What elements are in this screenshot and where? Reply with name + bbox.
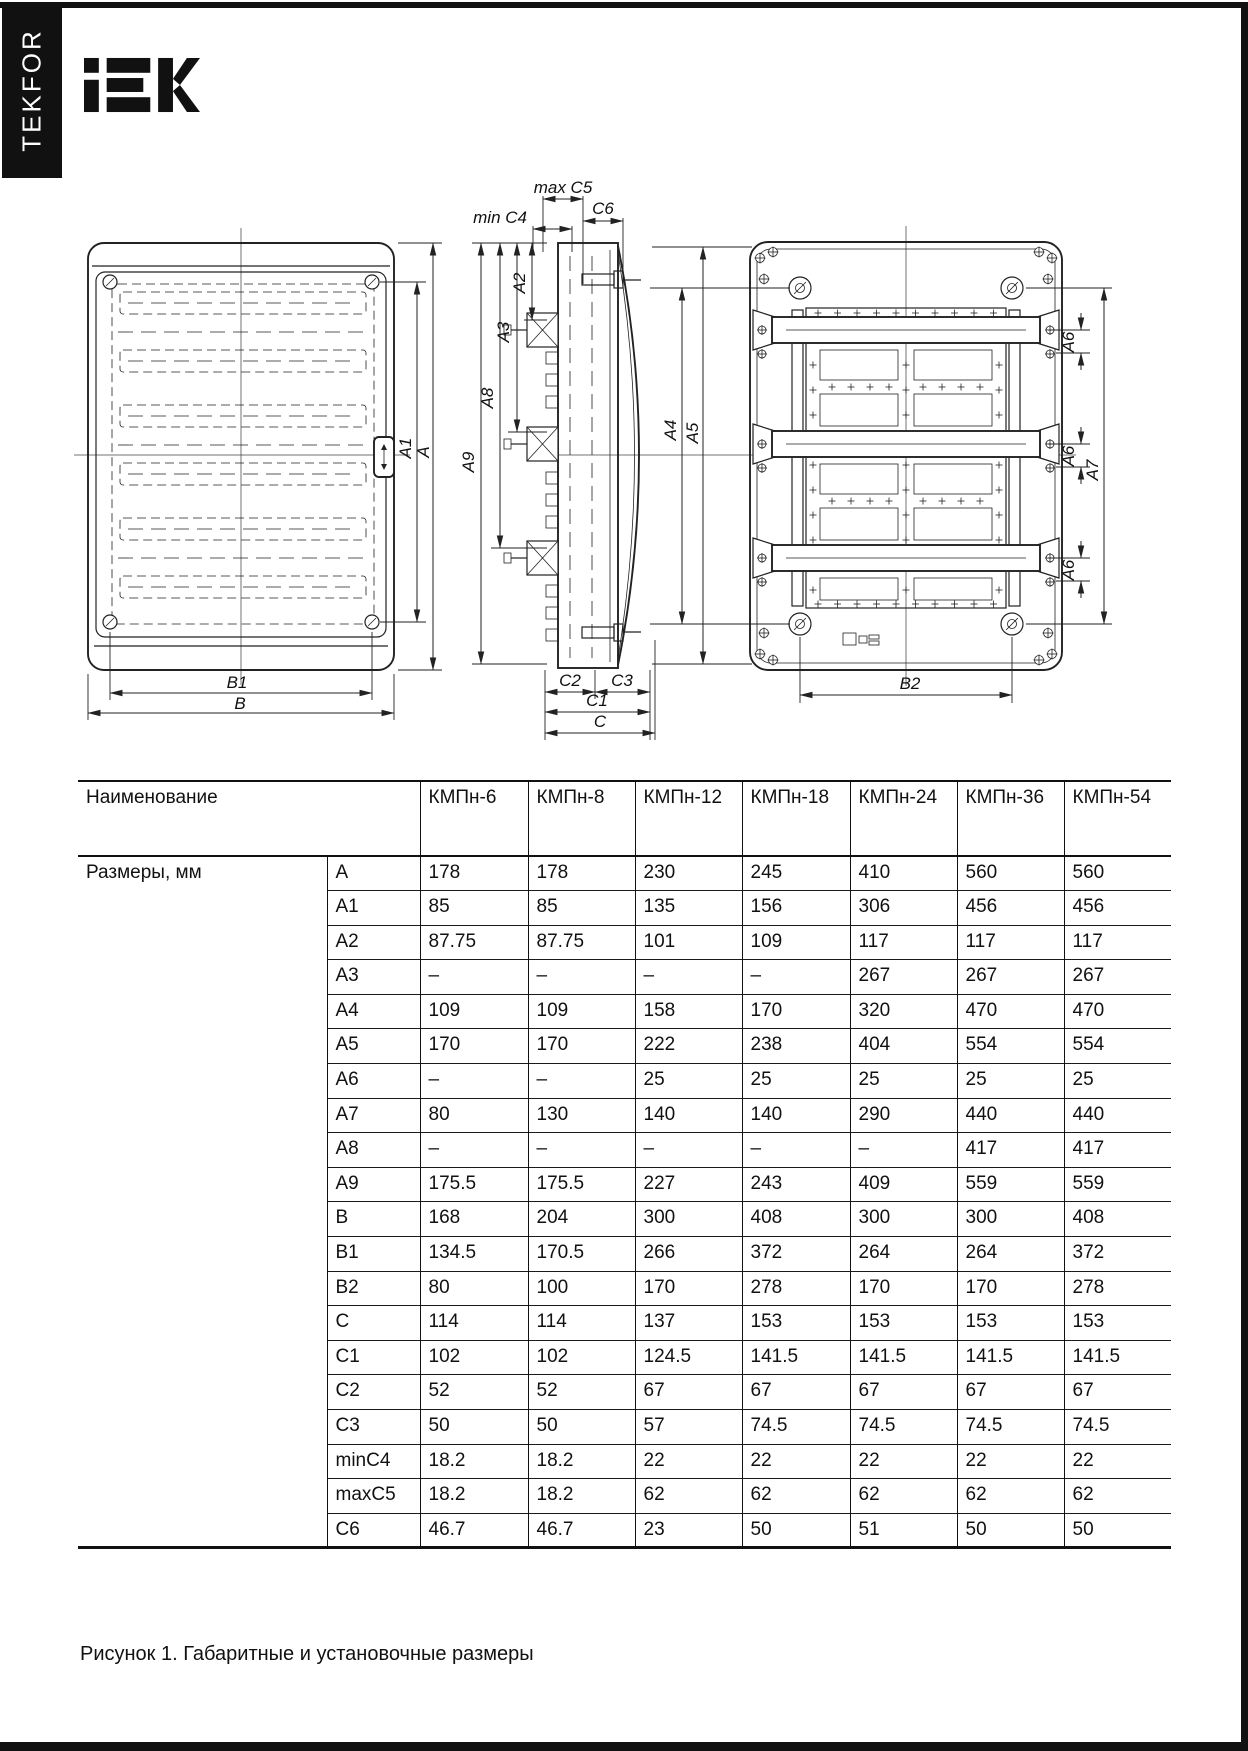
dim-label-c1: C1 [586,691,608,710]
dimension-name-cell: A7 [327,1098,420,1133]
dimension-value-cell: 67 [850,1375,957,1410]
dimension-name-cell: C [327,1306,420,1341]
dimension-name-cell: B [327,1202,420,1237]
dim-label-a6: A6 [1059,331,1078,353]
dimension-value-cell: 67 [742,1375,850,1410]
dimension-value-cell: 80 [420,1271,528,1306]
dimension-value-cell: 50 [742,1513,850,1548]
dimension-name-cell: A2 [327,925,420,960]
dimension-value-cell: 22 [957,1444,1064,1479]
dimension-value-cell: 267 [1064,960,1171,995]
dimension-value-cell: 267 [957,960,1064,995]
dimension-value-cell: 109 [742,925,850,960]
dimension-value-cell: 456 [1064,891,1171,926]
dimension-name-cell: A4 [327,994,420,1029]
dimension-value-cell: 175.5 [420,1167,528,1202]
dim-label-a4: A4 [661,420,680,442]
model-column-header: КМПн-12 [635,781,742,856]
dimension-value-cell: 140 [635,1098,742,1133]
dimension-value-cell: 560 [1064,856,1171,891]
dim-label-min-c4: min C4 [473,208,527,227]
dimension-value-cell: 51 [850,1513,957,1548]
dimension-value-cell: – [528,1064,635,1099]
dimension-value-cell: 278 [1064,1271,1171,1306]
model-column-header: КМПн-6 [420,781,528,856]
model-column-header: КМПн-36 [957,781,1064,856]
dimension-value-cell: 141.5 [957,1340,1064,1375]
dimension-value-cell: 204 [528,1202,635,1237]
dimension-value-cell: 117 [1064,925,1171,960]
dimension-value-cell: 74.5 [1064,1410,1171,1445]
dimension-value-cell: 440 [957,1098,1064,1133]
figure-caption: Рисунок 1. Габаритные и установочные раз… [80,1643,534,1666]
dimension-value-cell: – [528,1133,635,1168]
dimension-value-cell: 18.2 [420,1444,528,1479]
dimensions-table: Наименование КМПн-6КМПн-8КМПн-12КМПн-18К… [78,780,1171,1549]
dimension-value-cell: – [420,1064,528,1099]
dimension-value-cell: 278 [742,1271,850,1306]
dim-label-a2: A2 [510,272,529,294]
dimension-value-cell: 306 [850,891,957,926]
dimension-name-cell: A6 [327,1064,420,1099]
dimension-value-cell: 320 [850,994,957,1029]
dimension-value-cell: 559 [1064,1167,1171,1202]
dimension-value-cell: – [635,960,742,995]
dimension-name-cell: A9 [327,1167,420,1202]
dimension-value-cell: 470 [1064,994,1171,1029]
dimension-value-cell: 230 [635,856,742,891]
dimension-value-cell: 102 [420,1340,528,1375]
dimension-value-cell: 141.5 [742,1340,850,1375]
dimension-value-cell: 264 [957,1237,1064,1272]
dimension-value-cell: 85 [420,891,528,926]
dimension-value-cell: 554 [1064,1029,1171,1064]
dimension-value-cell: 22 [1064,1444,1171,1479]
dimension-value-cell: 50 [1064,1513,1171,1548]
dim-label-a: A [414,446,433,458]
dimension-value-cell: 170 [957,1271,1064,1306]
dimension-value-cell: 227 [635,1167,742,1202]
dimension-name-cell: A5 [327,1029,420,1064]
dimension-value-cell: 153 [957,1306,1064,1341]
table-header-row: Наименование КМПн-6КМПн-8КМПн-12КМПн-18К… [78,781,1171,856]
dimension-value-cell: 80 [420,1098,528,1133]
dimension-value-cell: 50 [957,1513,1064,1548]
dimension-value-cell: 114 [528,1306,635,1341]
dimension-value-cell: 170 [635,1271,742,1306]
dim-label-a7: A7 [1083,459,1102,481]
dimension-value-cell: 25 [1064,1064,1171,1099]
dimension-value-cell: 170 [850,1271,957,1306]
dimension-value-cell: 238 [742,1029,850,1064]
dimension-value-cell: 560 [957,856,1064,891]
dimension-value-cell: 62 [1064,1479,1171,1514]
dimension-value-cell: 417 [1064,1133,1171,1168]
dimension-name-cell: B2 [327,1271,420,1306]
dimension-value-cell: 102 [528,1340,635,1375]
dimension-value-cell: 178 [420,856,528,891]
dimension-value-cell: 52 [420,1375,528,1410]
dimension-value-cell: 130 [528,1098,635,1133]
dim-label-c3: C3 [611,671,633,690]
dimension-value-cell: 85 [528,891,635,926]
dimension-value-cell: – [850,1133,957,1168]
dimension-value-cell: 62 [957,1479,1064,1514]
dimension-value-cell: 62 [635,1479,742,1514]
dimension-value-cell: – [420,1133,528,1168]
dim-label-c2: C2 [559,671,581,690]
model-column-header: КМПн-18 [742,781,850,856]
dimension-value-cell: 410 [850,856,957,891]
dim-label-a5: A5 [683,422,702,444]
dimension-value-cell: 74.5 [850,1410,957,1445]
dimension-value-cell: 23 [635,1513,742,1548]
dimension-value-cell: 22 [742,1444,850,1479]
dimension-value-cell: 222 [635,1029,742,1064]
dimension-name-cell: C6 [327,1513,420,1548]
back-view-drawing: A4 A5 A6A6A6 A7 B2 [650,226,1112,703]
dimension-value-cell: 245 [742,856,850,891]
dimension-value-cell: 25 [850,1064,957,1099]
dimension-name-cell: A8 [327,1133,420,1168]
dimension-value-cell: 170.5 [528,1237,635,1272]
dimension-value-cell: 140 [742,1098,850,1133]
dim-label-a9: A9 [459,451,478,473]
dim-label-a3: A3 [494,321,513,343]
dimension-value-cell: 170 [420,1029,528,1064]
dimension-value-cell: 100 [528,1271,635,1306]
dimension-value-cell: 409 [850,1167,957,1202]
dimension-value-cell: 440 [1064,1098,1171,1133]
dimension-value-cell: 46.7 [420,1513,528,1548]
dimension-value-cell: 22 [850,1444,957,1479]
dimension-value-cell: 470 [957,994,1064,1029]
dimension-value-cell: 137 [635,1306,742,1341]
dimension-value-cell: 52 [528,1375,635,1410]
dimension-name-cell: C3 [327,1410,420,1445]
model-column-header: КМПн-24 [850,781,957,856]
model-column-header: КМПн-8 [528,781,635,856]
dimension-value-cell: 408 [742,1202,850,1237]
dimension-value-cell: 153 [850,1306,957,1341]
row-group-label: Размеры, мм [78,856,327,1548]
mold-mark [843,633,879,645]
dimension-value-cell: 266 [635,1237,742,1272]
dimension-value-cell: 559 [957,1167,1064,1202]
dimension-value-cell: 156 [742,891,850,926]
page-border-bottom [0,1742,1248,1751]
name-column-header: Наименование [78,781,420,856]
dimension-value-cell: 178 [528,856,635,891]
dimension-value-cell: 170 [528,1029,635,1064]
dimension-value-cell: 87.75 [528,925,635,960]
dimension-value-cell: 168 [420,1202,528,1237]
dimension-value-cell: – [420,960,528,995]
dimension-value-cell: 141.5 [1064,1340,1171,1375]
dimension-value-cell: 417 [957,1133,1064,1168]
dimension-value-cell: 134.5 [420,1237,528,1272]
dimension-value-cell: 175.5 [528,1167,635,1202]
dimension-value-cell: 101 [635,925,742,960]
dimension-name-cell: B1 [327,1237,420,1272]
dimension-value-cell: – [528,960,635,995]
dimension-value-cell: 87.75 [420,925,528,960]
model-column-header: КМПн-54 [1064,781,1171,856]
dimension-value-cell: 50 [528,1410,635,1445]
dimension-value-cell: 114 [420,1306,528,1341]
dim-label-c6: C6 [592,199,614,218]
dimension-value-cell: 124.5 [635,1340,742,1375]
dimension-value-cell: 456 [957,891,1064,926]
dimension-name-cell: A1 [327,891,420,926]
dimension-name-cell: C1 [327,1340,420,1375]
dimension-value-cell: 67 [635,1375,742,1410]
dimension-value-cell: 50 [420,1410,528,1445]
dimension-value-cell: – [742,1133,850,1168]
catalog-page: TEKFOR [0,0,1248,1751]
dimension-value-cell: 404 [850,1029,957,1064]
dimension-value-cell: 117 [850,925,957,960]
dimension-name-cell: maxC5 [327,1479,420,1514]
dimension-value-cell: 67 [957,1375,1064,1410]
dimension-value-cell: 300 [635,1202,742,1237]
technical-drawings: A1 A B1 B [0,0,1248,760]
dim-label-b: B [234,694,245,713]
dimension-value-cell: 300 [957,1202,1064,1237]
dim-label-a1: A1 [396,438,415,460]
dim-label-c: C [594,712,607,731]
dimension-value-cell: 372 [1064,1237,1171,1272]
dimension-value-cell: 243 [742,1167,850,1202]
dim-label-max-c5: max C5 [534,178,593,197]
dimension-name-cell: minC4 [327,1444,420,1479]
dim-label-a6: A6 [1059,445,1078,467]
dimension-name-cell: A3 [327,960,420,995]
dimension-value-cell: 170 [742,994,850,1029]
dimension-value-cell: 25 [635,1064,742,1099]
dimension-value-cell: 135 [635,891,742,926]
dimension-value-cell: 25 [957,1064,1064,1099]
dimension-value-cell: 18.2 [528,1444,635,1479]
dimension-value-cell: 372 [742,1237,850,1272]
dimension-value-cell: 67 [1064,1375,1171,1410]
dimension-value-cell: 109 [528,994,635,1029]
dimension-value-cell: 25 [742,1064,850,1099]
dim-label-a8: A8 [478,387,497,409]
dimension-value-cell: 18.2 [420,1479,528,1514]
dimension-value-cell: 109 [420,994,528,1029]
table-row: Размеры, ммA178178230245410560560 [78,856,1171,891]
front-view-drawing: A1 A B1 B [74,228,442,720]
dimension-value-cell: 18.2 [528,1479,635,1514]
dimension-value-cell: 267 [850,960,957,995]
dimension-value-cell: 74.5 [957,1410,1064,1445]
dimension-value-cell: 290 [850,1098,957,1133]
dim-label-b2: B2 [900,674,921,693]
dimension-value-cell: 141.5 [850,1340,957,1375]
dimension-value-cell: 158 [635,994,742,1029]
dimension-value-cell: 408 [1064,1202,1171,1237]
dimension-value-cell: 57 [635,1410,742,1445]
dimension-value-cell: 62 [742,1479,850,1514]
dim-label-b1: B1 [227,673,248,692]
dimension-value-cell: – [742,960,850,995]
dimension-value-cell: 300 [850,1202,957,1237]
dimension-value-cell: 22 [635,1444,742,1479]
dimension-value-cell: 117 [957,925,1064,960]
dimension-value-cell: 554 [957,1029,1064,1064]
dimension-name-cell: C2 [327,1375,420,1410]
dimension-value-cell: 264 [850,1237,957,1272]
dimension-value-cell: 74.5 [742,1410,850,1445]
dimension-value-cell: – [635,1133,742,1168]
dimension-value-cell: 153 [1064,1306,1171,1341]
dimension-value-cell: 62 [850,1479,957,1514]
dimension-value-cell: 46.7 [528,1513,635,1548]
dimension-name-cell: A [327,856,420,891]
dimension-value-cell: 153 [742,1306,850,1341]
dim-label-a6: A6 [1059,559,1078,581]
